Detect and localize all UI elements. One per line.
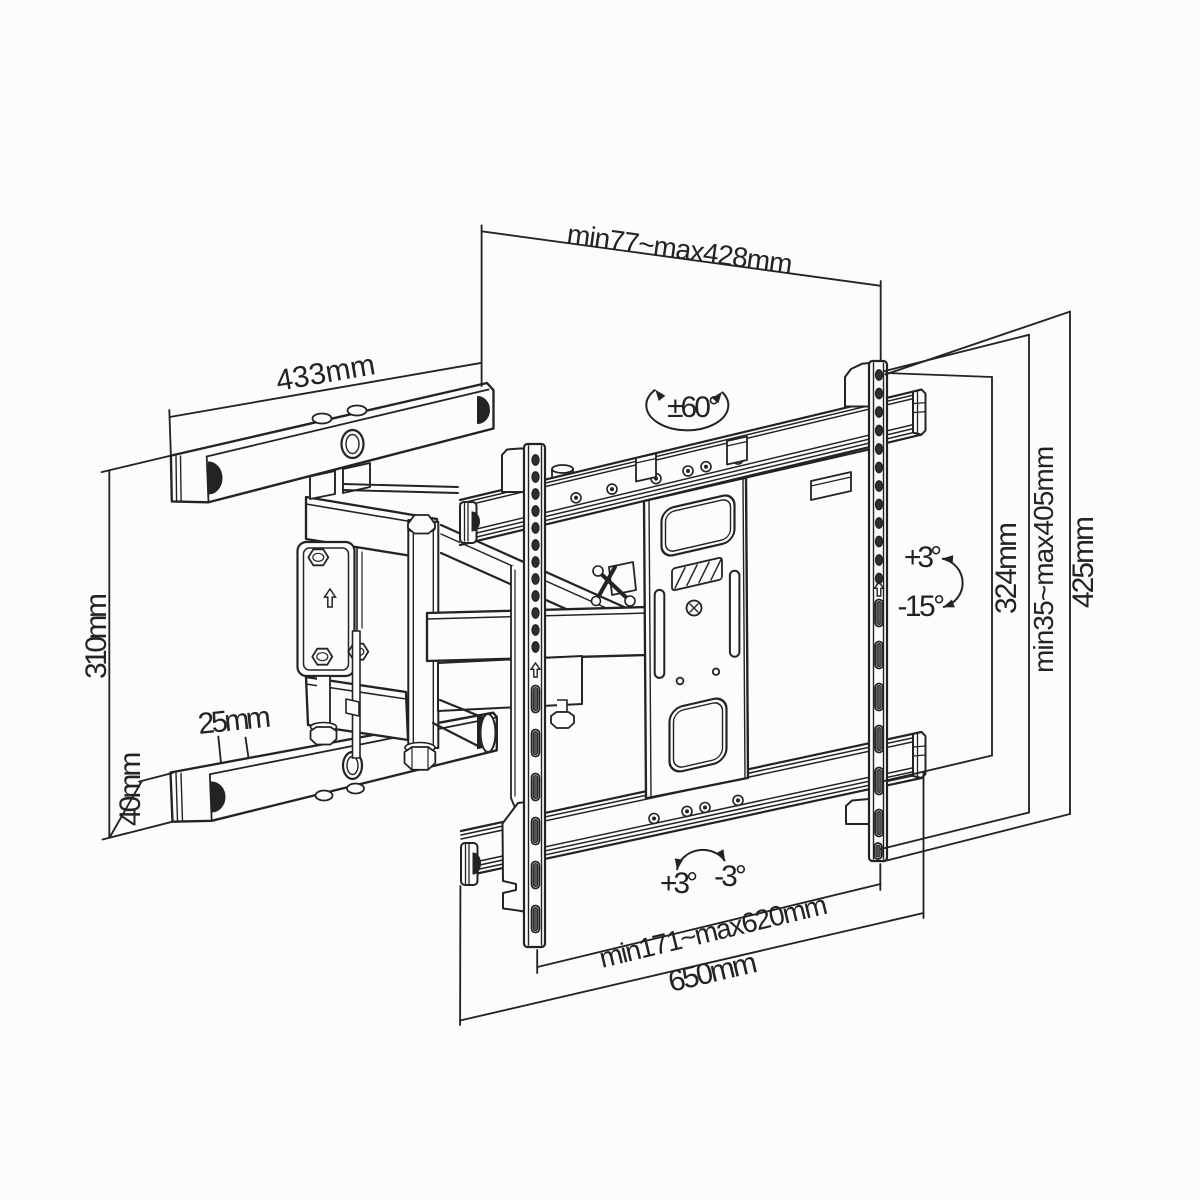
svg-text:310mm: 310mm xyxy=(80,594,113,679)
svg-text:324mm: 324mm xyxy=(990,523,1023,614)
svg-text:425mm: 425mm xyxy=(1067,517,1100,608)
svg-text:-15°: -15° xyxy=(898,590,945,623)
svg-text:±60°: ±60° xyxy=(667,391,719,424)
svg-text:min35~max405mm: min35~max405mm xyxy=(1028,447,1059,673)
svg-text:40mm: 40mm xyxy=(114,753,147,826)
svg-text:+3°: +3° xyxy=(904,541,941,574)
svg-text:+3°: +3° xyxy=(660,867,697,900)
svg-text:-3°: -3° xyxy=(714,860,746,893)
